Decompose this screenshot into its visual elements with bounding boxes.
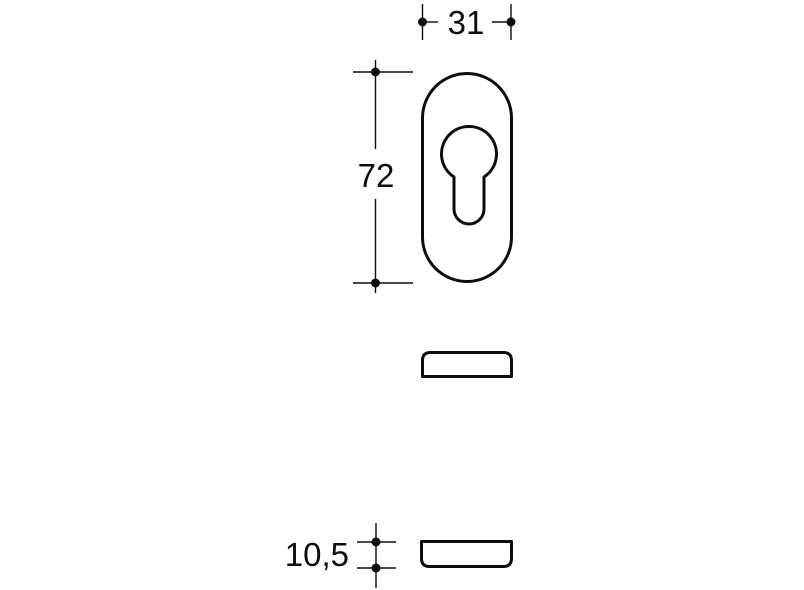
dim-width-dot-right [507,18,516,27]
dim-width-label: 31 [448,4,485,41]
dim-thickness-dot-top [372,538,381,547]
dimension-thickness: 10,5 [285,523,396,588]
side-view-lower-outline [422,542,512,567]
dim-thickness-label: 10,5 [285,536,349,573]
dimension-width: 31 [418,4,516,41]
front-view [423,74,512,282]
dimension-height: 72 [353,60,413,293]
side-view-lower [422,542,512,567]
dim-height-dot-top [371,68,380,77]
escutcheon-dimension-drawing: 31 72 10,5 [0,0,804,590]
dim-width-dot-left [418,18,427,27]
euro-cylinder-cutout [442,126,497,224]
dim-height-dot-bottom [371,279,380,288]
side-view-upper [423,353,512,377]
dim-thickness-dot-bottom [372,564,381,573]
dim-height-label: 72 [358,157,395,194]
side-view-upper-outline [423,353,512,377]
technical-drawing-canvas: 31 72 10,5 [0,0,804,590]
front-view-plate-outline [423,74,512,282]
